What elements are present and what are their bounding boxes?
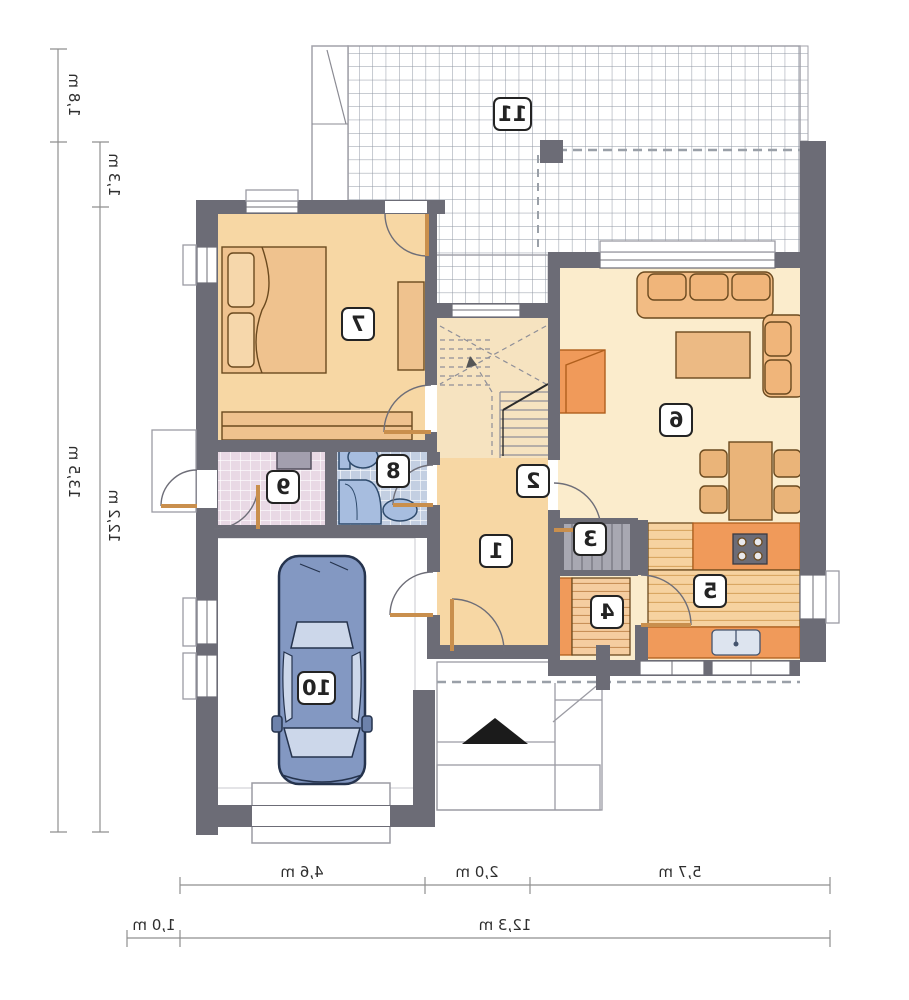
armchair bbox=[558, 350, 605, 413]
room-badge-corridor: 2 bbox=[516, 464, 550, 498]
sink bbox=[383, 499, 417, 521]
room-badge-closet: 3 bbox=[573, 522, 607, 556]
side-window bbox=[283, 652, 292, 722]
car-mirror bbox=[362, 716, 372, 732]
dim-left-offset: 1,0 m bbox=[109, 916, 199, 934]
dining-table bbox=[729, 442, 772, 520]
room-badge-kitchen: 5 bbox=[693, 574, 727, 608]
dim-garage-width: 4,6 m bbox=[257, 863, 347, 881]
room-badge-garage: 10 bbox=[297, 671, 336, 705]
room-badge-bedroom: 7 bbox=[341, 307, 375, 341]
terrace-edge-column bbox=[312, 46, 348, 202]
dim-hall-width: 2,0 m bbox=[432, 863, 522, 881]
windshield bbox=[284, 728, 360, 757]
room-badge-pantry: 4 bbox=[590, 595, 624, 629]
room-badge-living: 6 bbox=[659, 403, 693, 437]
dim-left-inner: 12,2 m bbox=[105, 471, 123, 561]
dim-living-width: 5,7 m bbox=[635, 863, 725, 881]
dim-left-outer: 13,5 m bbox=[65, 427, 83, 517]
dim-left-upper: 1,3 m bbox=[105, 130, 123, 220]
dresser bbox=[398, 282, 424, 370]
rear-window bbox=[291, 622, 353, 648]
dim-left-terrace: 1,8 m bbox=[65, 50, 83, 140]
car-mirror bbox=[272, 716, 282, 732]
room-badge-bathroom: 8 bbox=[376, 454, 410, 488]
shower bbox=[339, 480, 381, 524]
room-badge-terrace: 11 bbox=[493, 97, 532, 131]
stairs bbox=[437, 318, 548, 458]
side-window bbox=[352, 652, 361, 722]
car bbox=[272, 556, 372, 784]
room-badge-utility: 9 bbox=[266, 470, 300, 504]
floor-plan-drawing bbox=[0, 0, 909, 1000]
terrace-pillar bbox=[540, 140, 563, 163]
pillow bbox=[228, 253, 254, 307]
room-badge-hall: 1 bbox=[479, 534, 513, 568]
pillow bbox=[228, 313, 254, 367]
dim-total-width: 12,3 m bbox=[460, 916, 550, 934]
entry-porch bbox=[437, 662, 800, 810]
floor-plan: 1,8 m 13,5 m 1,3 m 12,2 m 4,6 m 2,0 m 5,… bbox=[0, 0, 909, 1000]
radiator bbox=[183, 245, 196, 285]
cooktop bbox=[733, 534, 767, 564]
kitchen-sink bbox=[712, 630, 760, 655]
coffee-table bbox=[676, 332, 750, 378]
